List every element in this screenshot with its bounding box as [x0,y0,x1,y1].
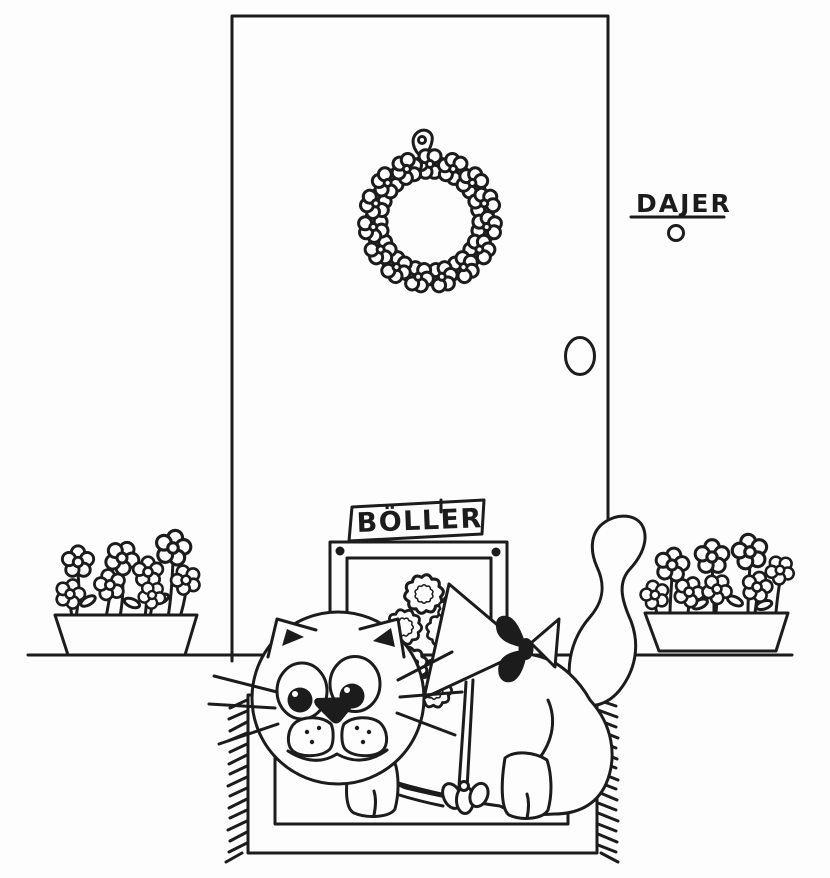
cat-eye-glint-left [292,691,298,697]
cat-flap-sign-text: BÖLLER [356,501,483,539]
drawing: DAJER BÖLLER [0,0,830,878]
front-door [232,16,608,661]
cat-muzzle-right [342,718,387,756]
whisker-dot [317,726,321,730]
cat-front-toe-line [374,791,376,815]
cat-tail [569,516,645,705]
flower-pot-right [638,531,799,651]
cat-pupil-left [288,688,313,713]
name-plate: DAJER [631,189,732,241]
flower-pot-left [52,527,204,655]
paw-bow [439,781,491,814]
pot [645,613,788,651]
cat-flap-sign: BÖLLER [349,500,484,541]
whisker-dot [305,730,309,734]
pot [55,615,197,655]
door-handle [566,338,595,375]
doormat-fringe-left [226,700,247,862]
whisker-dot [310,740,314,744]
doorbell-button [669,226,684,241]
illustration-canvas: DAJER BÖLLER [0,0,830,878]
whisker-dot [367,730,371,734]
flower-wreath [357,130,502,294]
cat-flap-screw-left [336,547,345,556]
cat-hind-toe-line [527,794,529,818]
whisker-dot [361,740,365,744]
cat-hind-leg [502,753,551,819]
cat-flap-screw-right [492,548,501,557]
whisker-dot [355,726,359,730]
cat-muzzle-left [288,718,333,756]
cat-eye-glint-right [344,687,350,693]
name-plate-text: DAJER [636,189,732,218]
